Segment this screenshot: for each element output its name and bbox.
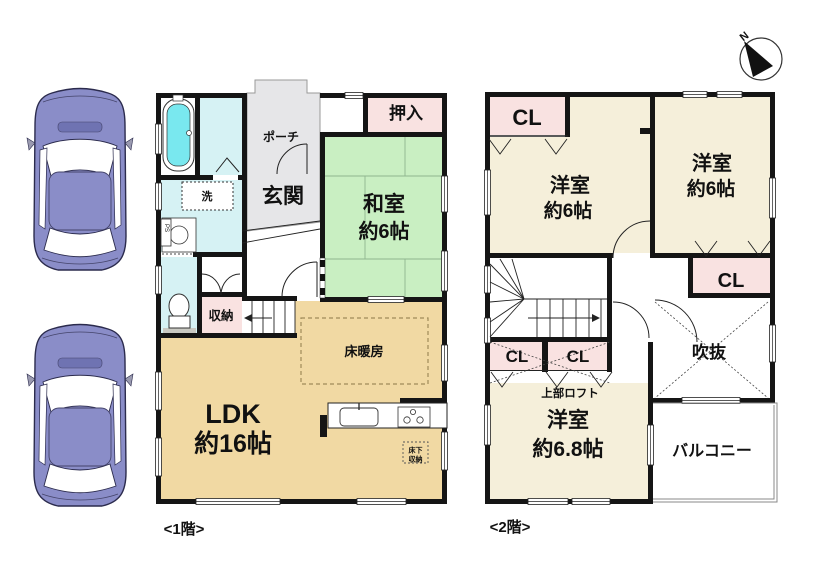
label-underfloor-1: 床下: [409, 446, 423, 455]
label-loft: 上部ロフト: [541, 386, 599, 400]
stairs-down-arrow-icon: [244, 314, 252, 322]
label-ldk-size: 約16帖: [194, 429, 272, 458]
label-room-left-size: 約6帖: [544, 199, 593, 222]
floor1-plan: ポーチ 玄関 押入 和室 約6帖 洗 PS 収納 床暖房 LDK 約16帖 床下…: [156, 80, 448, 538]
label-laundry: 洗: [202, 189, 213, 203]
car-bottom: [27, 325, 133, 507]
kitchen-sink-icon: [340, 408, 378, 426]
label-cl-top-left: CL: [512, 105, 541, 130]
label-room-bottom-name: 洋室: [547, 408, 589, 432]
kitchen-stove-icon: [398, 407, 430, 427]
car-top: [27, 89, 133, 271]
floor2-plan: CL 洋室 約6帖 洋室 約6帖 CL CL CL 上部ロフト 洋室 約6.8帖…: [485, 92, 778, 537]
stairs-floor2: [490, 259, 607, 337]
label-entrance: 玄関: [262, 184, 304, 208]
label-room-right-size: 約6帖: [687, 177, 736, 200]
label-underfloor-2: 収納: [409, 455, 423, 464]
label-washitsu-size: 約6帖: [358, 219, 409, 243]
washitsu-sliding-door: [320, 258, 325, 298]
label-room-bottom-size: 約6.8帖: [532, 437, 603, 461]
stairs-up-arrow-icon: [592, 314, 600, 322]
label-cl-small-2: CL: [567, 347, 590, 366]
label-floor1: <1階>: [164, 520, 205, 538]
label-room-right-name: 洋室: [692, 151, 732, 175]
label-pipe-shaft: PS: [163, 224, 169, 232]
floor-plan-canvas: N: [0, 0, 819, 561]
room-west-right: [655, 97, 770, 253]
label-cl-small-1: CL: [506, 347, 529, 366]
label-floor2: <2階>: [490, 518, 531, 536]
kitchen-counter: [328, 403, 447, 428]
label-storage: 収納: [208, 308, 233, 323]
label-porch: ポーチ: [263, 129, 299, 144]
label-void: 吹抜: [692, 342, 727, 362]
room-bath-washarea: [200, 98, 242, 175]
label-room-left-name: 洋室: [550, 173, 590, 197]
room-washitsu: [325, 137, 442, 297]
bathtub-icon: [163, 95, 194, 171]
label-cl-mid-right: CL: [718, 270, 745, 292]
stairs-floor1: [244, 301, 295, 333]
label-washitsu-name: 和室: [363, 192, 405, 216]
floor-plan-page: N: [0, 0, 819, 561]
label-ldk-name: LDK: [205, 399, 261, 429]
compass-rose: N: [738, 30, 782, 80]
label-balcony: バルコニー: [672, 442, 752, 460]
label-oshiire: 押入: [389, 103, 423, 123]
label-floor-heating: 床暖房: [344, 344, 383, 359]
